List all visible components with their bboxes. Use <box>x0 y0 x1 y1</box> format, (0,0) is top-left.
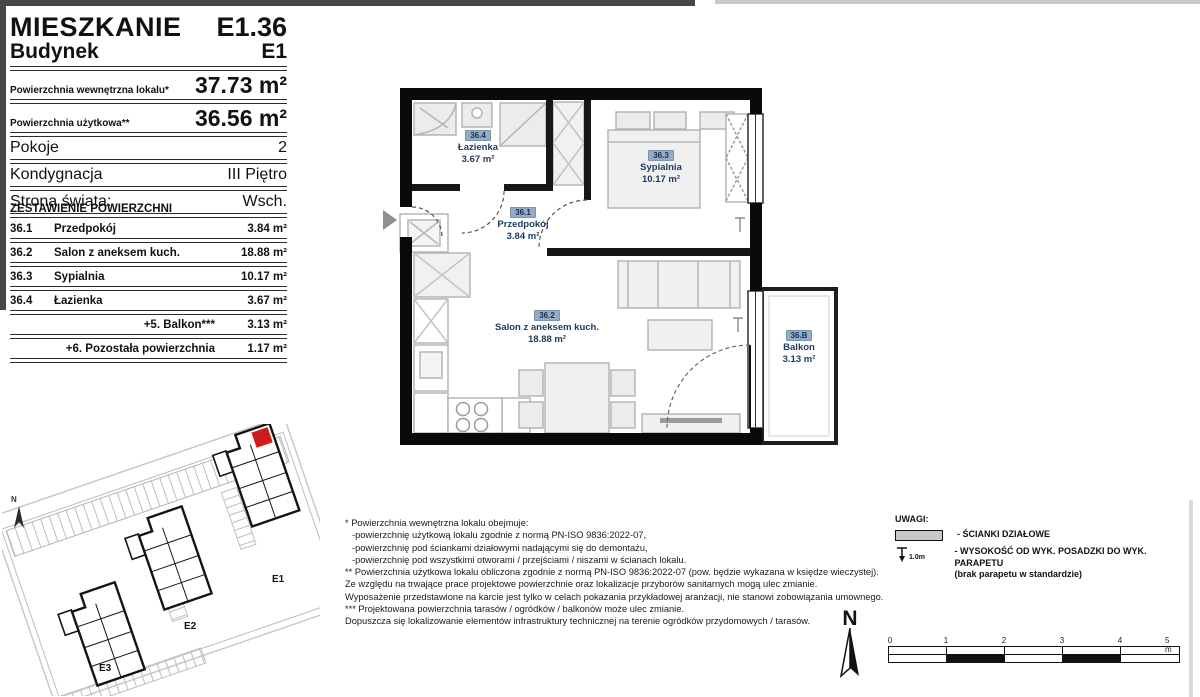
room-label-hall: 36.1 Przedpokój 3.84 m² <box>478 207 568 242</box>
divider <box>10 66 287 71</box>
divider <box>10 186 287 191</box>
bedroom-window <box>748 114 763 203</box>
area-table-title: ZESTAWIENIE POWIERZCHNI <box>10 203 287 215</box>
entrance-arrow-icon <box>383 210 397 230</box>
wardrobe-icon <box>553 102 584 185</box>
svg-text:1.0m: 1.0m <box>909 554 925 561</box>
room-number-badge: 36.1 <box>510 207 536 218</box>
footnote-line: *** Projektowana powierzchnia tarasów / … <box>345 603 890 615</box>
room-label-bathroom: 36.4 Łazienka 3.67 m² <box>436 130 520 165</box>
site-building-e2 <box>121 506 211 614</box>
room-area: 18.88 m² <box>528 334 566 345</box>
footnote-line: ** Powierzchnia użytkowa lokalu obliczon… <box>345 566 890 578</box>
divider <box>10 99 287 104</box>
building-label: Budynek <box>10 40 99 64</box>
divider <box>10 334 287 339</box>
metric-internal-area: Powierzchnia wewnętrzna lokalu* 37.73 m² <box>10 73 287 97</box>
room-name: Sypialnia <box>640 162 682 173</box>
room-name: Balkon <box>783 342 815 353</box>
legend-item-partition: - ŚCIANKI DZIAŁOWE <box>895 529 1195 541</box>
footnotes-block: * Powierzchnia wewnętrzna lokalu obejmuj… <box>345 517 890 628</box>
room-name: Salon z aneksem kuch. <box>495 322 599 333</box>
room-area: 10.17 m² <box>642 174 680 185</box>
page-left-edge <box>0 0 6 310</box>
stove-icon <box>448 398 502 433</box>
page-top-edge-light <box>715 0 1200 4</box>
metric-rooms: Pokoje 2 <box>10 139 287 157</box>
table-row: 36.1 Przedpokój 3.84 m² <box>10 221 287 236</box>
divider <box>10 286 287 291</box>
metric-usable-area: Powierzchnia użytkowa** 36.56 m² <box>10 106 287 130</box>
room-name: Łazienka <box>458 142 498 153</box>
sill-height-icon: 1.0m <box>895 546 929 564</box>
room-label-bedroom: 36.3 Sypialnia 10.17 m² <box>618 150 704 185</box>
dining-table-icon <box>519 363 635 433</box>
partition-wall-icon <box>895 530 943 541</box>
table-row: +6. Pozostała powierzchnia 1.17 m² <box>10 341 287 356</box>
legend-item-sill-height: 1.0m - WYSOKOŚĆ OD WYK. POSADZKI DO WYK.… <box>895 546 1195 581</box>
closet-icon <box>726 114 748 202</box>
north-compass: N <box>833 610 867 685</box>
page-top-edge-dark <box>0 0 695 6</box>
divider <box>10 310 287 315</box>
divider <box>10 262 287 267</box>
footnote-line: -powierzchnię pod wszystkimi otworami / … <box>345 554 890 566</box>
table-row: 36.4 Łazienka 3.67 m² <box>10 293 287 308</box>
legend-block: UWAGI: - ŚCIANKI DZIAŁOWE 1.0m - WYSOKOŚ… <box>895 514 1195 586</box>
coffee-table-icon <box>648 320 712 350</box>
table-row: 36.3 Sypialnia 10.17 m² <box>10 269 287 284</box>
divider <box>10 358 287 363</box>
site-plan-drawing <box>2 424 320 696</box>
north-label: N <box>833 610 867 628</box>
balcony-outline <box>762 289 836 443</box>
apartment-card-page: MIESZKANIE E1.36 Budynek E1 Powierzchnia… <box>0 0 1200 697</box>
footnote-line: Ze względu na trwające prace projektowe … <box>345 578 890 590</box>
room-number-badge: 36.2 <box>534 310 560 321</box>
legend-title: UWAGI: <box>895 514 1195 524</box>
scale-ticks: 0 1 2 3 4 5 m <box>888 636 1180 646</box>
site-building-label-e2: E2 <box>184 621 196 632</box>
room-number-badge: 36.4 <box>465 130 491 141</box>
room-number-badge: 36.3 <box>648 150 674 161</box>
footnote-line: Wyposażenie przedstawione na karcie jest… <box>345 591 890 603</box>
room-area: 3.67 m² <box>462 154 495 165</box>
footnote-line: * Powierzchnia wewnętrzna lokalu obejmuj… <box>345 517 890 529</box>
room-area: 3.84 m² <box>507 231 540 242</box>
north-arrow-icon <box>837 628 863 680</box>
site-building-label-e3: E3 <box>99 663 111 674</box>
sink-icon <box>462 103 492 127</box>
sofa-icon <box>618 261 740 308</box>
room-label-balcony: 36.B Balkon 3.13 m² <box>768 330 830 365</box>
unit-header: MIESZKANIE E1.36 Budynek E1 Powierzchnia… <box>10 12 287 220</box>
balcony-door-window <box>667 291 763 428</box>
unit-number: E1.36 <box>216 12 287 43</box>
building-value: E1 <box>261 40 287 64</box>
table-row: 36.2 Salon z aneksem kuch. 18.88 m² <box>10 245 287 260</box>
room-name: Przedpokój <box>497 219 548 230</box>
metric-floor: Kondygnacja III Piętro <box>10 166 287 184</box>
divider <box>10 238 287 243</box>
site-layout <box>2 424 320 696</box>
room-area: 3.13 m² <box>783 354 816 365</box>
tv-stand-icon <box>642 414 740 433</box>
footnote-line: -powierzchnię pod ściankami działowymi n… <box>345 542 890 554</box>
site-building-label-e1: E1 <box>272 574 284 585</box>
divider <box>10 132 287 137</box>
table-row: +5. Balkon*** 3.13 m² <box>10 317 287 332</box>
scale-bar: 0 1 2 3 4 5 m <box>888 636 1180 663</box>
room-label-living: 36.2 Salon z aneksem kuch. 18.88 m² <box>482 310 612 345</box>
area-summary-table: ZESTAWIENIE POWIERZCHNI 36.1 Przedpokój … <box>10 203 287 365</box>
room-number-badge: 36.B <box>786 330 813 341</box>
footnote-line: -powierzchnię użytkową lokalu zgodnie z … <box>345 529 890 541</box>
site-north-label: N <box>11 495 17 504</box>
divider <box>10 159 287 164</box>
scale-bar-graphic <box>888 646 1180 663</box>
page-title: MIESZKANIE <box>10 12 182 43</box>
footnote-line: Dopuszcza się lokalizowanie elementów in… <box>345 615 890 627</box>
